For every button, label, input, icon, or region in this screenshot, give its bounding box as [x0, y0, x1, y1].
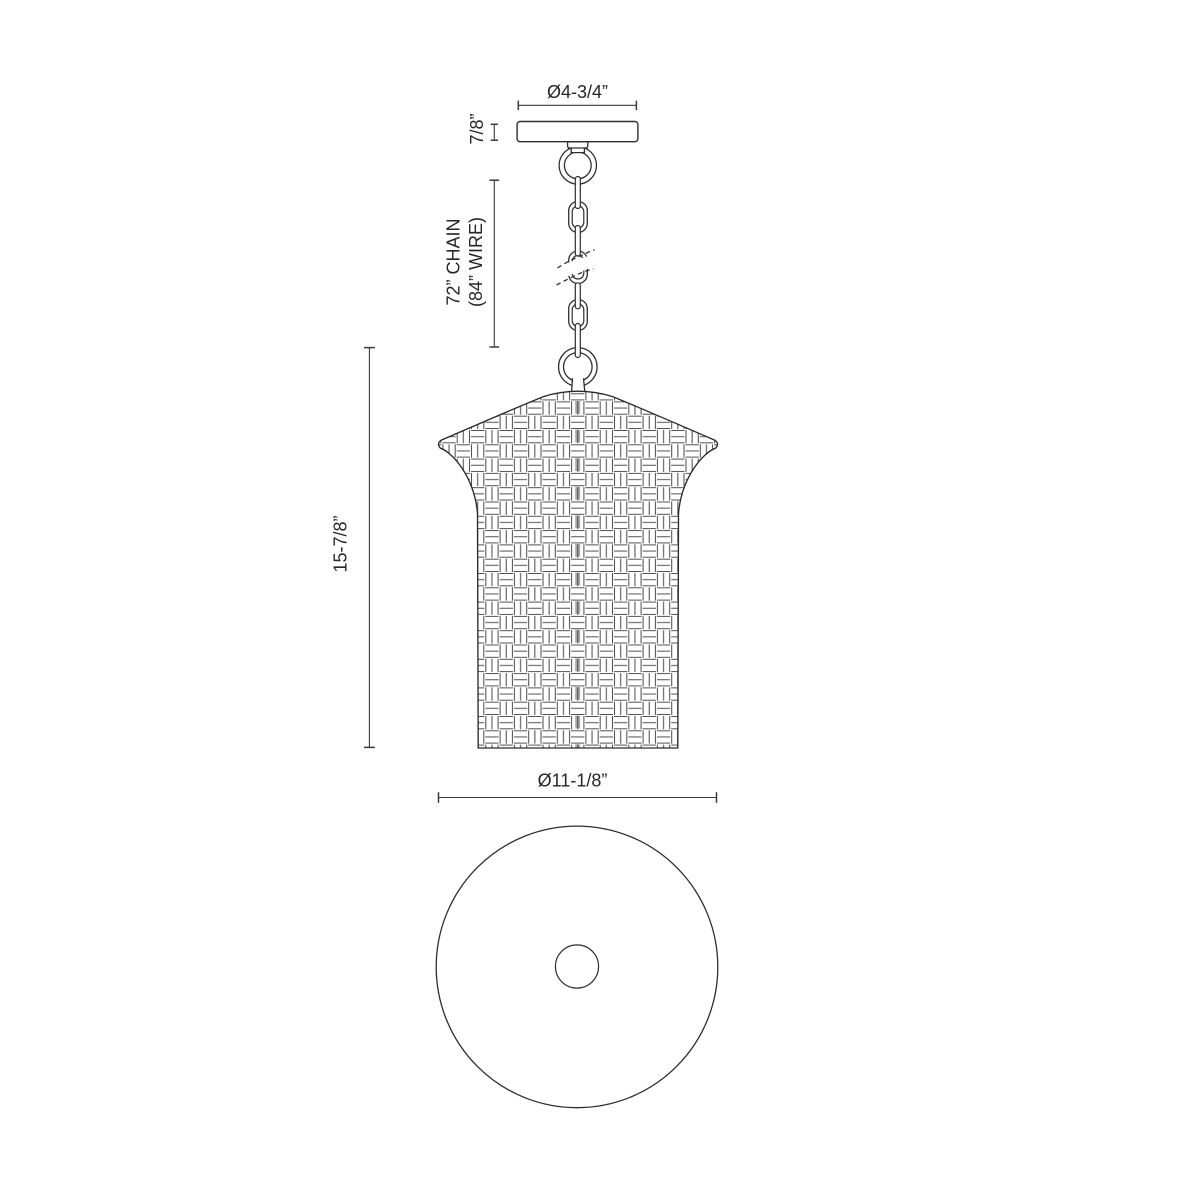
svg-text:15-7/8”: 15-7/8” [331, 515, 351, 572]
svg-text:7/8”: 7/8” [467, 113, 487, 144]
svg-text:72” CHAIN: 72” CHAIN [444, 218, 464, 305]
svg-text:Ø11-1/8”: Ø11-1/8” [538, 771, 608, 791]
svg-text:(84” WIRE): (84” WIRE) [466, 217, 486, 307]
svg-text:Ø4-3/4”: Ø4-3/4” [547, 82, 608, 102]
